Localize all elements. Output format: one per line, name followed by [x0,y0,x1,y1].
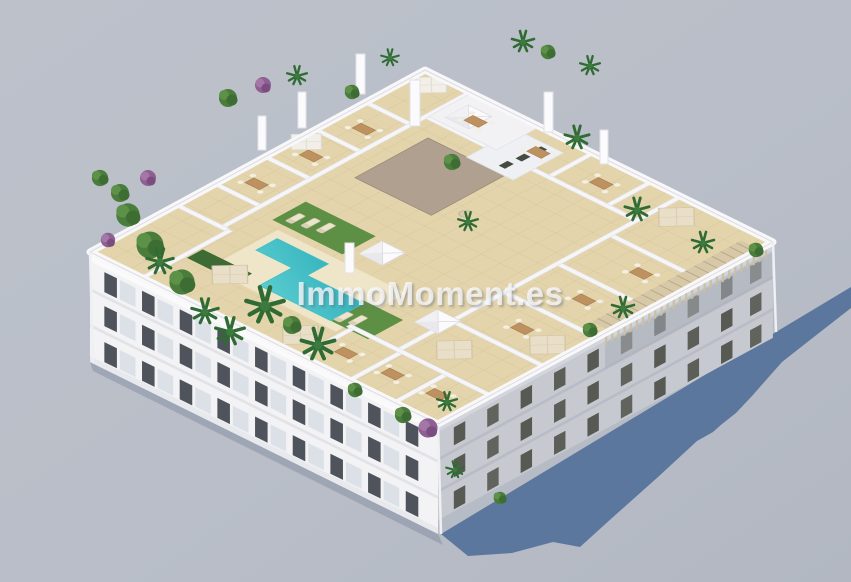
watermark: ImmoMoment.es [280,274,580,314]
flowering-shrub [101,233,115,247]
flowering-shrub [140,170,156,186]
flowering-shrub [418,418,437,437]
flowering-shrub [255,77,271,93]
render-canvas: ImmoMoment.es [0,0,851,582]
